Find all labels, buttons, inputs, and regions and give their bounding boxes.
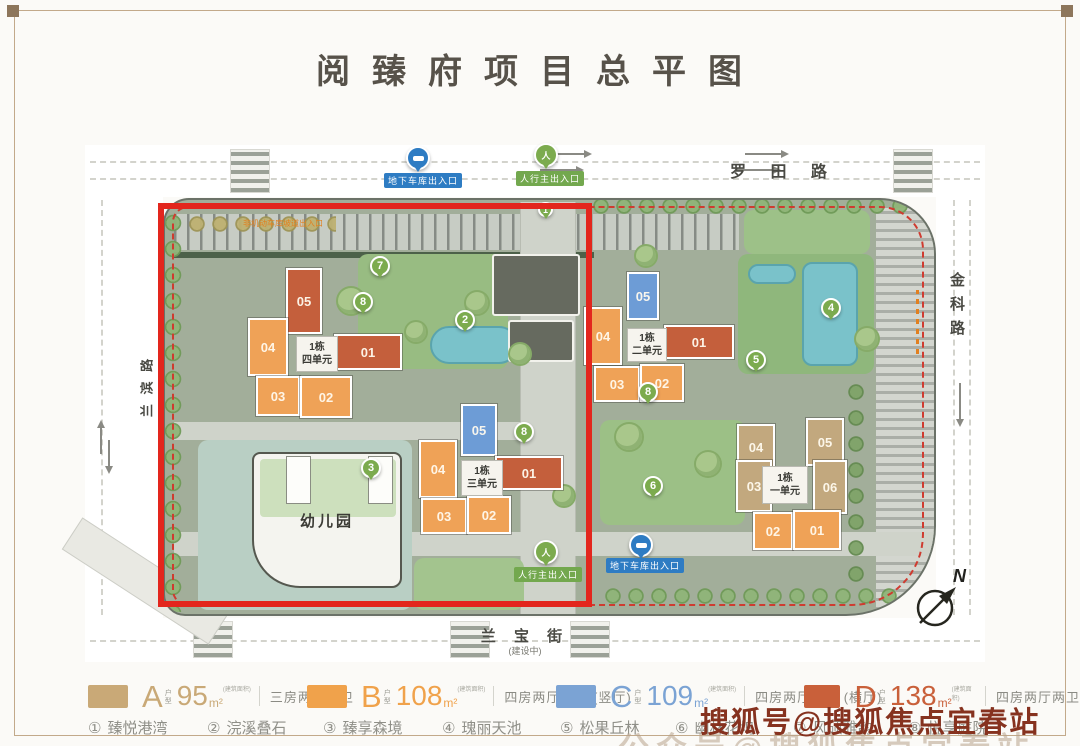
lane-line xyxy=(953,200,955,615)
unit-label: 1栋 四单元 xyxy=(296,336,338,372)
car-icon xyxy=(413,156,424,161)
pedestrian-entrance-pin: 人 xyxy=(534,143,558,167)
lawn xyxy=(414,558,524,610)
compass-north-label: N xyxy=(953,566,966,587)
unit-label-name: 1栋 xyxy=(777,472,793,485)
tree-row xyxy=(602,586,922,607)
tree xyxy=(510,344,530,364)
legend-letter: B xyxy=(361,681,382,712)
feature-pin-8: 8 xyxy=(353,292,373,312)
unit-label: 1栋 三单元 xyxy=(461,460,503,496)
road-label-lanbao: 兰 宝 街 xyxy=(470,625,580,646)
feature-num: ② xyxy=(207,719,220,737)
car-icon xyxy=(636,543,647,548)
feature-item-1: ①臻悦港湾 xyxy=(88,717,167,738)
building: 04 xyxy=(248,318,288,376)
legend-area-note: (建筑面积) xyxy=(708,680,736,693)
legend-area: 95 xyxy=(177,682,208,710)
garage-entrance-label: 地下车库出入口 xyxy=(606,558,684,573)
feature-item-2: ②浣溪叠石 xyxy=(207,717,286,738)
building: 06 xyxy=(813,460,847,514)
unit-label-unit: 一单元 xyxy=(770,485,800,498)
feature-pin-3: 3 xyxy=(361,458,381,478)
legend-area-unit: m² xyxy=(209,696,223,712)
feature-name: 瑰丽天池 xyxy=(461,717,521,738)
legend-divider xyxy=(493,686,494,706)
pond-central xyxy=(430,326,518,364)
feature-pin-5: 5 xyxy=(746,350,766,370)
garage-entrance-pin xyxy=(629,533,653,557)
feature-num: ③ xyxy=(323,719,336,737)
legend-type-label: 户型 xyxy=(384,690,393,706)
legend-swatch-b xyxy=(307,685,347,708)
traffic-arrow xyxy=(108,440,110,466)
unit-label-unit: 三单元 xyxy=(467,478,497,491)
tree xyxy=(636,246,656,266)
pedestrian-entrance-label: 人行主出入口 xyxy=(514,567,582,582)
traffic-arrow xyxy=(745,153,781,155)
pedestrian-entrance-label: 人行主出入口 xyxy=(516,171,584,186)
pool-small xyxy=(748,264,796,284)
unit-label: 1栋 一单元 xyxy=(762,466,808,504)
legend-letter: C xyxy=(610,681,632,712)
garage-entrance-label: 地下车库出入口 xyxy=(384,173,462,188)
feature-num: ① xyxy=(88,719,101,737)
building: 02 xyxy=(300,376,352,418)
tree xyxy=(696,452,720,476)
ramp-note-label: 非机动车库坡道出入口 xyxy=(243,218,323,229)
unit-label-unit: 四单元 xyxy=(302,354,332,367)
tree xyxy=(616,424,642,450)
road-label-lanbin: 兰 滨 路 xyxy=(137,352,156,422)
building: 03 xyxy=(421,498,467,534)
legend-area-note: (建筑面积) xyxy=(457,680,485,693)
lane-line xyxy=(969,200,971,615)
building: 04 xyxy=(419,440,457,498)
building: 02 xyxy=(467,496,511,534)
unit-label-name: 1栋 xyxy=(309,341,325,354)
legend-area: 109 xyxy=(646,682,693,710)
legend-area-note: (建筑面积) xyxy=(223,680,251,693)
unit-label-name: 1栋 xyxy=(639,332,655,345)
legend-type-label: 户型 xyxy=(634,690,643,706)
road-label-lanbao-note: (建设中) xyxy=(470,644,580,657)
kindergarten-block xyxy=(286,456,311,504)
feature-name: 浣溪叠石 xyxy=(226,717,286,738)
legend-area: 108 xyxy=(396,682,443,710)
legend-divider xyxy=(259,686,260,706)
feature-item-3: ③臻享森境 xyxy=(323,717,402,738)
building: 02 xyxy=(753,512,793,550)
crosswalk xyxy=(893,149,933,193)
building: 04 xyxy=(584,307,622,365)
tree xyxy=(856,328,878,350)
feature-item-4: ④瑰丽天池 xyxy=(442,717,521,738)
legend-letter: A xyxy=(142,681,163,712)
garage-entrance-pin xyxy=(406,146,430,170)
feature-num: ⑤ xyxy=(560,719,573,737)
frame-corner-left xyxy=(7,5,19,17)
ramp-marking xyxy=(916,290,919,354)
crosswalk xyxy=(230,149,270,193)
legend-type-label: 户型 xyxy=(165,690,174,706)
building: 01 xyxy=(334,334,402,370)
person-icon: 人 xyxy=(541,546,550,559)
site-plan-page: 阅臻府项目总平图 罗 田 路 金科路 兰 滨 路 兰 宝 街 (建设中) xyxy=(0,0,1080,746)
legend-swatch-c xyxy=(556,685,596,708)
road-label-luotian: 罗 田 路 xyxy=(730,158,837,182)
traffic-arrow xyxy=(959,383,961,419)
legend-swatch-a xyxy=(88,685,128,708)
building: 03 xyxy=(594,366,640,402)
kindergarten-label: 幼儿园 xyxy=(254,510,400,531)
tree-row xyxy=(845,382,871,590)
unit-label: 1栋 二单元 xyxy=(627,328,667,362)
building: 01 xyxy=(495,456,563,490)
tree-row xyxy=(590,198,934,218)
page-title: 阅臻府项目总平图 xyxy=(0,44,1080,93)
feature-pin-8: 8 xyxy=(514,422,534,442)
road-label-jinke: 金科路 xyxy=(946,272,967,344)
tree-row xyxy=(163,210,186,612)
building: 05 xyxy=(461,404,497,456)
tree xyxy=(406,322,426,342)
feature-pin-4: 4 xyxy=(821,298,841,318)
feature-pin-7: 7 xyxy=(370,256,390,276)
unit-label-unit: 二单元 xyxy=(632,345,662,358)
building: 05 xyxy=(806,418,844,466)
feature-pin-6: 6 xyxy=(643,476,663,496)
feature-num: ④ xyxy=(442,719,455,737)
feature-pin-8: 8 xyxy=(638,382,658,402)
feature-name: 臻享森境 xyxy=(342,717,402,738)
building: 05 xyxy=(627,272,659,320)
pedestrian-entrance-pin: 人 xyxy=(534,540,558,564)
unit-label-name: 1栋 xyxy=(474,465,490,478)
feature-name: 臻悦港湾 xyxy=(107,717,167,738)
feature-pin-1: 1 xyxy=(538,202,553,217)
watermark-sohu: 搜狐号@搜狐焦点宜春站 xyxy=(700,699,1040,741)
clubhouse-roof xyxy=(492,254,580,316)
traffic-arrow xyxy=(100,428,102,454)
building: 05 xyxy=(286,268,322,334)
legend-area-unit: m² xyxy=(443,696,457,712)
feature-pin-2: 2 xyxy=(455,310,475,330)
building: 01 xyxy=(664,325,734,359)
building: 01 xyxy=(793,510,841,550)
frame-corner-right xyxy=(1061,5,1073,17)
person-icon: 人 xyxy=(541,149,550,162)
building: 03 xyxy=(256,376,300,416)
